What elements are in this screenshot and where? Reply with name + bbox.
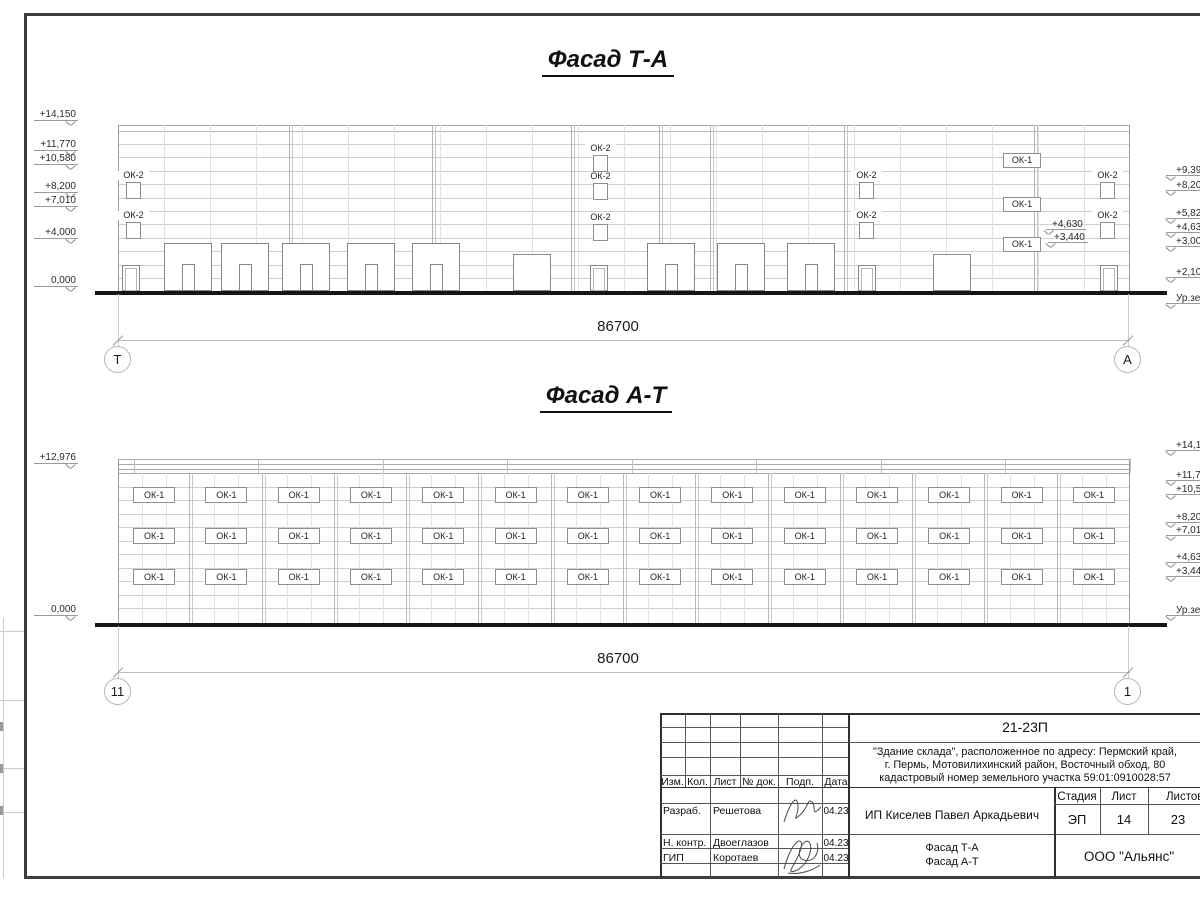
facade-ta-title-text: Фасад Т-А [542, 46, 674, 77]
window-frame [1100, 182, 1115, 199]
parapet-joint-line [258, 459, 259, 473]
drawing-sheet: Фасад Т-А Фасад А-Т 86700 86700 Т А 11 1… [0, 0, 1200, 900]
door-wicket [665, 264, 678, 291]
elevation-mark: +8,200 [30, 182, 76, 192]
window-label: ОК-1 [933, 532, 965, 541]
window-label: ОК-1 [933, 491, 965, 500]
level-tick-icon [1166, 495, 1175, 501]
facade-edge [118, 125, 119, 291]
dimension-line [118, 672, 1130, 673]
window-frame [593, 155, 608, 172]
door-wicket [239, 264, 252, 291]
window-frame [593, 224, 608, 241]
window-frame [126, 182, 141, 199]
elevation-mark: +4,000 [30, 228, 76, 238]
dimension-top-value: 86700 [558, 318, 678, 335]
door-double [513, 254, 551, 291]
signature-icon-gip [778, 831, 824, 877]
window-label: ОК-1 [427, 491, 459, 500]
column-line [337, 473, 338, 623]
level-tick-icon [66, 207, 75, 213]
door-leaf [125, 268, 137, 291]
panel-line [118, 514, 1130, 515]
column-line [262, 473, 263, 623]
sheet-border-top [24, 13, 1200, 16]
column-line [626, 473, 627, 623]
panel-joint-line [624, 125, 625, 291]
column-line [481, 473, 482, 623]
parapet-line [118, 459, 1130, 460]
level-tick-icon [1166, 536, 1175, 542]
elevation-mark: +4,63 [1176, 223, 1200, 233]
level-tick-icon [66, 464, 75, 470]
axis-marker-T: Т [104, 346, 131, 373]
parapet-line [118, 464, 1130, 465]
window-label: ОК-1 [210, 532, 242, 541]
parapet-joint-line [1005, 459, 1006, 473]
column-line [554, 473, 555, 623]
col-header-kol: Кол. [685, 776, 710, 788]
ground-line [95, 623, 1167, 627]
window-label: ОК-1 [861, 573, 893, 582]
parapet-joint-line [632, 459, 633, 473]
window-label: ОК-1 [138, 573, 170, 582]
window-label: ОК-1 [1006, 491, 1038, 500]
level-tick-icon [1166, 176, 1175, 182]
window-label: ОК-1 [283, 532, 315, 541]
panel-line [118, 568, 1130, 569]
window-label: ОК-1 [210, 573, 242, 582]
panel-joint-line [854, 125, 855, 291]
level-tick-icon [1166, 616, 1175, 622]
panel-joint-line [486, 125, 487, 291]
panel-line [118, 595, 1130, 596]
window-label: ОК-1 [572, 491, 604, 500]
panel-joint-line [900, 125, 901, 291]
window-label: ОК-1 [500, 573, 532, 582]
elevation-mark: 0,000 [30, 605, 76, 615]
level-tick-icon [1166, 247, 1175, 253]
elevation-mark: +14,150 [30, 110, 76, 120]
margin-text-fragment [0, 806, 3, 815]
parapet-joint-line [507, 459, 508, 473]
column-line [912, 473, 913, 623]
elevation-mark: 0,000 [30, 276, 76, 286]
titleblock-description-line2: г. Пермь, Мотовилихинский район, Восточн… [852, 759, 1198, 771]
row-date-razrab: 04.23 [822, 806, 850, 817]
panel-line [118, 608, 1130, 609]
window-label: ОК-1 [1006, 240, 1038, 249]
elevation-mark: +7,01 [1176, 526, 1200, 536]
sheet-header: Лист [1100, 791, 1148, 803]
window-label: ОК-1 [644, 532, 676, 541]
elevation-mark: +11,77 [1176, 471, 1200, 481]
door-wicket [365, 264, 378, 291]
titleblock-client: ИП Киселев Павел Аркадьевич [850, 808, 1054, 822]
titleblock-divider [848, 742, 1200, 744]
titleblock-border [660, 713, 662, 878]
titleblock-grid [710, 713, 711, 878]
elevation-mark: +7,010 [30, 196, 76, 206]
door-double [933, 254, 971, 291]
window-label: ОК-1 [861, 532, 893, 541]
axis-marker-A: А [1114, 346, 1141, 373]
column-line [478, 473, 479, 623]
column-line [551, 473, 552, 623]
window-label: ОК-2 [851, 171, 882, 180]
level-tick-icon [1166, 191, 1175, 197]
window-label: ОК-1 [716, 532, 748, 541]
row-name-nkontr: Двоеглазов [713, 837, 769, 849]
doc-title-line1: Фасад Т-А [850, 842, 1054, 854]
panel-line [118, 527, 1130, 528]
column-line [1060, 473, 1061, 623]
parapet-joint-line [881, 459, 882, 473]
panel-line [118, 500, 1130, 501]
column-line [698, 473, 699, 623]
elevation-mark: +10,580 [30, 154, 76, 164]
column-line [844, 125, 845, 291]
window-label: ОК-1 [933, 573, 965, 582]
column-line [710, 125, 711, 291]
panel-line [118, 554, 1130, 555]
col-header-podp: Подп. [778, 776, 822, 788]
margin-line [0, 768, 24, 769]
sheets-total-header: Листов [1166, 791, 1200, 803]
facade-edge [118, 459, 119, 623]
elevation-mark: +4,630 [1052, 220, 1083, 230]
door-leaf [1103, 268, 1115, 291]
door-wicket [430, 264, 443, 291]
col-header-doc: № док. [740, 776, 778, 788]
doc-title-line2: Фасад А-Т [850, 856, 1054, 868]
window-label: ОК-2 [585, 144, 616, 153]
column-line [915, 473, 916, 623]
level-tick-icon [66, 287, 75, 293]
column-line [984, 473, 985, 623]
elevation-mark: +3,00 [1176, 237, 1200, 247]
window-label: ОК-1 [427, 532, 459, 541]
window-label: ОК-1 [789, 532, 821, 541]
parapet-line [118, 469, 1130, 470]
sheet-value: 14 [1100, 812, 1148, 827]
margin-line [0, 700, 24, 701]
window-label: ОК-1 [138, 491, 170, 500]
row-role-razrab: Разраб. [663, 805, 701, 817]
window-label: ОК-1 [1006, 573, 1038, 582]
margin-text-fragment [0, 764, 3, 773]
stage-header: Стадия [1054, 791, 1100, 803]
window-label: ОК-1 [138, 532, 170, 541]
elevation-mark: +3,44 [1176, 567, 1200, 577]
row-role-gip: ГИП [663, 852, 684, 864]
window-label: ОК-1 [644, 491, 676, 500]
titleblock-divider [1054, 804, 1200, 805]
elevation-mark: +3,440 [1054, 233, 1085, 243]
margin-line [3, 618, 4, 878]
sheets-total-value: 23 [1148, 812, 1200, 827]
window-label: ОК-1 [210, 491, 242, 500]
elevation-mark: Ур.зем [1176, 606, 1200, 616]
level-tick-icon [1166, 278, 1175, 284]
margin-text-fragment [0, 722, 3, 731]
window-label: ОК-1 [789, 491, 821, 500]
window-frame [1100, 222, 1115, 239]
panel-line [118, 581, 1130, 582]
column-line [192, 473, 193, 623]
window-label: ОК-1 [572, 573, 604, 582]
column-line [334, 473, 335, 623]
panel-joint-line [1084, 125, 1085, 291]
elevation-mark: +10,58 [1176, 485, 1200, 495]
window-label: ОК-1 [861, 491, 893, 500]
panel-joint-line [578, 125, 579, 291]
axis-marker-1: 1 [1114, 678, 1141, 705]
door-wicket [182, 264, 195, 291]
level-tick-icon [66, 165, 75, 171]
window-label: ОК-2 [585, 213, 616, 222]
window-label: ОК-2 [1092, 171, 1123, 180]
panel-line [118, 541, 1130, 542]
level-tick-icon [1166, 233, 1175, 239]
elevation-mark: +12,976 [30, 453, 76, 463]
facade-ta-title: Фасад Т-А [468, 46, 748, 74]
level-tick-icon [66, 121, 75, 127]
door-wicket [735, 264, 748, 291]
titleblock-company: ООО "Альянс" [1054, 849, 1200, 864]
elevation-mark: +11,770 [30, 140, 76, 150]
window-label: ОК-1 [789, 573, 821, 582]
dimension-bottom-value: 86700 [558, 650, 678, 667]
level-tick-icon [1166, 304, 1175, 310]
parapet-joint-line [756, 459, 757, 473]
margin-line [0, 812, 24, 813]
window-label: ОК-1 [283, 573, 315, 582]
sheet-border-bottom [24, 876, 1200, 879]
level-tick-icon [66, 239, 75, 245]
elevation-mark: +8,20 [1176, 181, 1200, 191]
elevation-mark: +5,82 [1176, 209, 1200, 219]
window-label: ОК-1 [572, 532, 604, 541]
window-frame [859, 222, 874, 239]
window-label: ОК-2 [1092, 211, 1123, 220]
level-tick-icon [1166, 577, 1175, 583]
column-line [840, 473, 841, 623]
column-line [695, 473, 696, 623]
parapet-joint-line [383, 459, 384, 473]
row-name-gip: Коротаев [713, 852, 758, 864]
window-label: ОК-2 [851, 211, 882, 220]
elevation-mark: +9,39 [1176, 166, 1200, 176]
column-line [987, 473, 988, 623]
door-leaf [593, 268, 605, 291]
column-line [409, 473, 410, 623]
parapet-joint-line [134, 459, 135, 473]
door-leaf [861, 268, 873, 291]
titleblock-description-line3: кадастровый номер земельного участка 59:… [852, 772, 1198, 784]
ground-line [95, 291, 1167, 295]
column-line [713, 125, 714, 291]
dimension-line [118, 340, 1130, 341]
titleblock-grid [660, 742, 848, 743]
facade-edge [1129, 459, 1130, 623]
facade-edge [1129, 125, 1130, 291]
level-tick-icon [1166, 563, 1175, 569]
panel-joint-line [992, 125, 993, 291]
column-line [768, 473, 769, 623]
column-line [265, 473, 266, 623]
elevation-mark: Ур.зе [1176, 294, 1200, 304]
col-header-data: Дата [822, 776, 850, 788]
window-label: ОК-1 [1078, 573, 1110, 582]
window-label: ОК-1 [283, 491, 315, 500]
elevation-mark: +14,15 [1176, 441, 1200, 451]
column-line [623, 473, 624, 623]
window-frame [593, 183, 608, 200]
column-line [1057, 473, 1058, 623]
elevation-mark: +8,20 [1176, 513, 1200, 523]
column-line [571, 125, 572, 291]
level-tick-icon [1046, 243, 1055, 249]
titleblock-grid [660, 757, 848, 758]
titleblock-grid [660, 727, 848, 728]
door-wicket [300, 264, 313, 291]
col-header-list: Лист [710, 776, 740, 788]
elevation-mark: +4,63 [1176, 553, 1200, 563]
level-tick-icon [66, 616, 75, 622]
sheet-border-left [24, 13, 27, 878]
margin-line [0, 631, 24, 632]
column-line [771, 473, 772, 623]
window-label: ОК-2 [585, 172, 616, 181]
window-label: ОК-1 [500, 532, 532, 541]
column-line [847, 125, 848, 291]
facade-at-title: Фасад А-Т [466, 382, 746, 410]
window-label: ОК-1 [716, 573, 748, 582]
window-label: ОК-1 [716, 491, 748, 500]
window-label: ОК-1 [355, 573, 387, 582]
signature-icon-razrab [780, 792, 824, 828]
elevation-mark: +2,10 [1176, 268, 1200, 278]
level-tick-icon [1166, 481, 1175, 487]
window-label: ОК-1 [427, 573, 459, 582]
row-date-gip: 04.23 [822, 853, 850, 864]
window-label: ОК-1 [1006, 532, 1038, 541]
window-label: ОК-1 [644, 573, 676, 582]
axis-marker-11: 11 [104, 678, 131, 705]
column-line [189, 473, 190, 623]
stage-value: ЭП [1054, 812, 1100, 827]
window-label: ОК-1 [1078, 532, 1110, 541]
window-frame [126, 222, 141, 239]
facade-at-title-text: Фасад А-Т [540, 382, 672, 413]
level-tick-icon [1166, 219, 1175, 225]
window-label: ОК-1 [355, 491, 387, 500]
window-label: ОК-1 [1006, 200, 1038, 209]
window-label: ОК-1 [500, 491, 532, 500]
level-tick-icon [1166, 523, 1175, 529]
row-role-nkontr: Н. контр. [663, 837, 706, 849]
parapet-line [118, 473, 1130, 474]
titleblock-description-line1: "Здание склада", расположенное по адресу… [852, 746, 1198, 758]
window-label: ОК-1 [1006, 156, 1038, 165]
row-date-nkontr: 04.23 [822, 838, 850, 849]
titleblock-code: 21-23П [850, 719, 1200, 735]
level-tick-icon [1166, 451, 1175, 457]
door-wicket [805, 264, 818, 291]
window-label: ОК-1 [1078, 491, 1110, 500]
column-line [843, 473, 844, 623]
column-line [574, 125, 575, 291]
col-header-izm: Изм. [660, 776, 685, 788]
window-label: ОК-1 [355, 532, 387, 541]
column-line [406, 473, 407, 623]
window-label: ОК-2 [118, 171, 149, 180]
row-name-razrab: Решетова [713, 805, 761, 817]
window-label: ОК-2 [118, 211, 149, 220]
window-frame [859, 182, 874, 199]
titleblock-border [660, 713, 1200, 715]
level-tick-icon [1044, 230, 1053, 236]
panel-line [118, 487, 1130, 488]
